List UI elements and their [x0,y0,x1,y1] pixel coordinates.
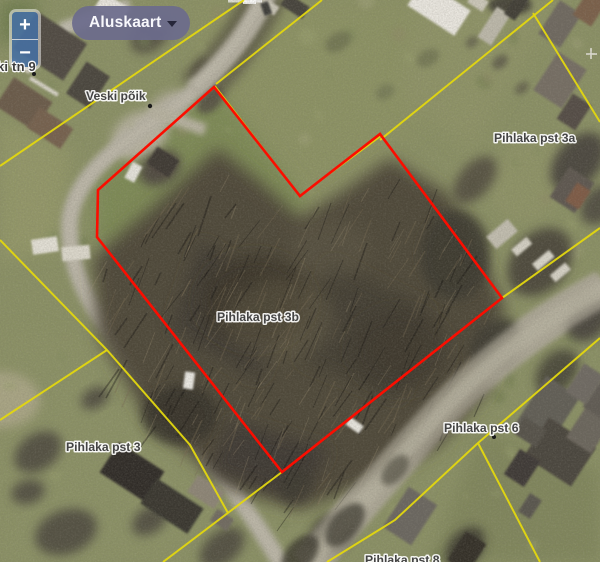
svg-text:Pihlaka pst 8: Pihlaka pst 8 [365,553,440,562]
svg-text:Pihlaka pst 6: Pihlaka pst 6 [444,421,519,435]
svg-text:Pihlaka pst 3b: Pihlaka pst 3b [217,310,299,324]
svg-text:Pihlaka pst 3: Pihlaka pst 3 [66,440,141,454]
svg-text:Veski põik: Veski põik [86,89,146,103]
svg-text:Pihlaka pst 3a: Pihlaka pst 3a [494,131,576,145]
